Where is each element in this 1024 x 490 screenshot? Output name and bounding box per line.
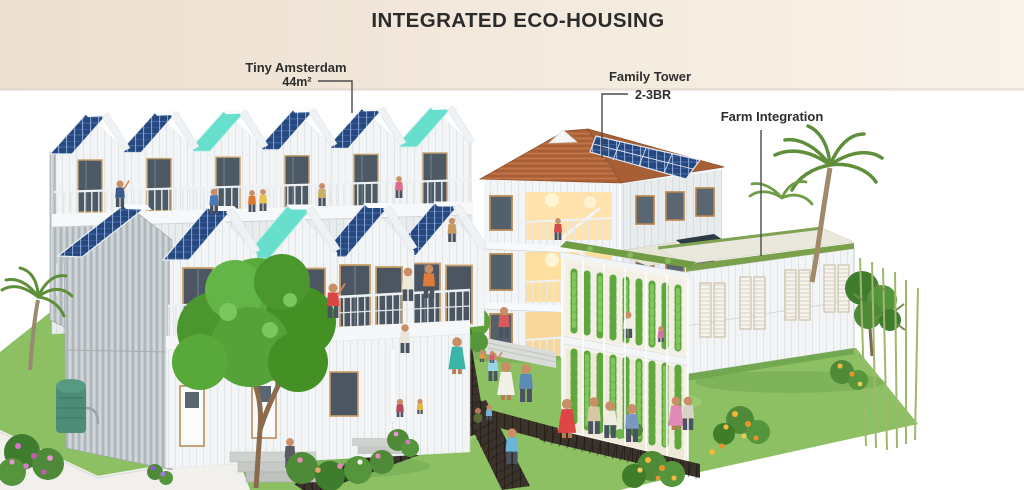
annotation-tiny-amsterdam-sublabel: 44m²: [282, 75, 311, 89]
eco-housing-infographic: INTEGRATED ECO-HOUSING: [0, 0, 1024, 490]
annotation-family-tower-sublabel: 2-3BR: [635, 88, 671, 102]
eco-housing-illustration: INTEGRATED ECO-HOUSING: [0, 0, 1024, 490]
page-title: INTEGRATED ECO-HOUSING: [371, 9, 664, 32]
annotation-tiny-amsterdam-label: Tiny Amsterdam: [245, 60, 346, 75]
porch-column: [390, 348, 396, 422]
annotation-farm-integration-label: Farm Integration: [721, 109, 824, 124]
annotation-family-tower-label: Family Tower: [609, 69, 691, 84]
vertical-farm-greenhouse: [540, 241, 700, 478]
